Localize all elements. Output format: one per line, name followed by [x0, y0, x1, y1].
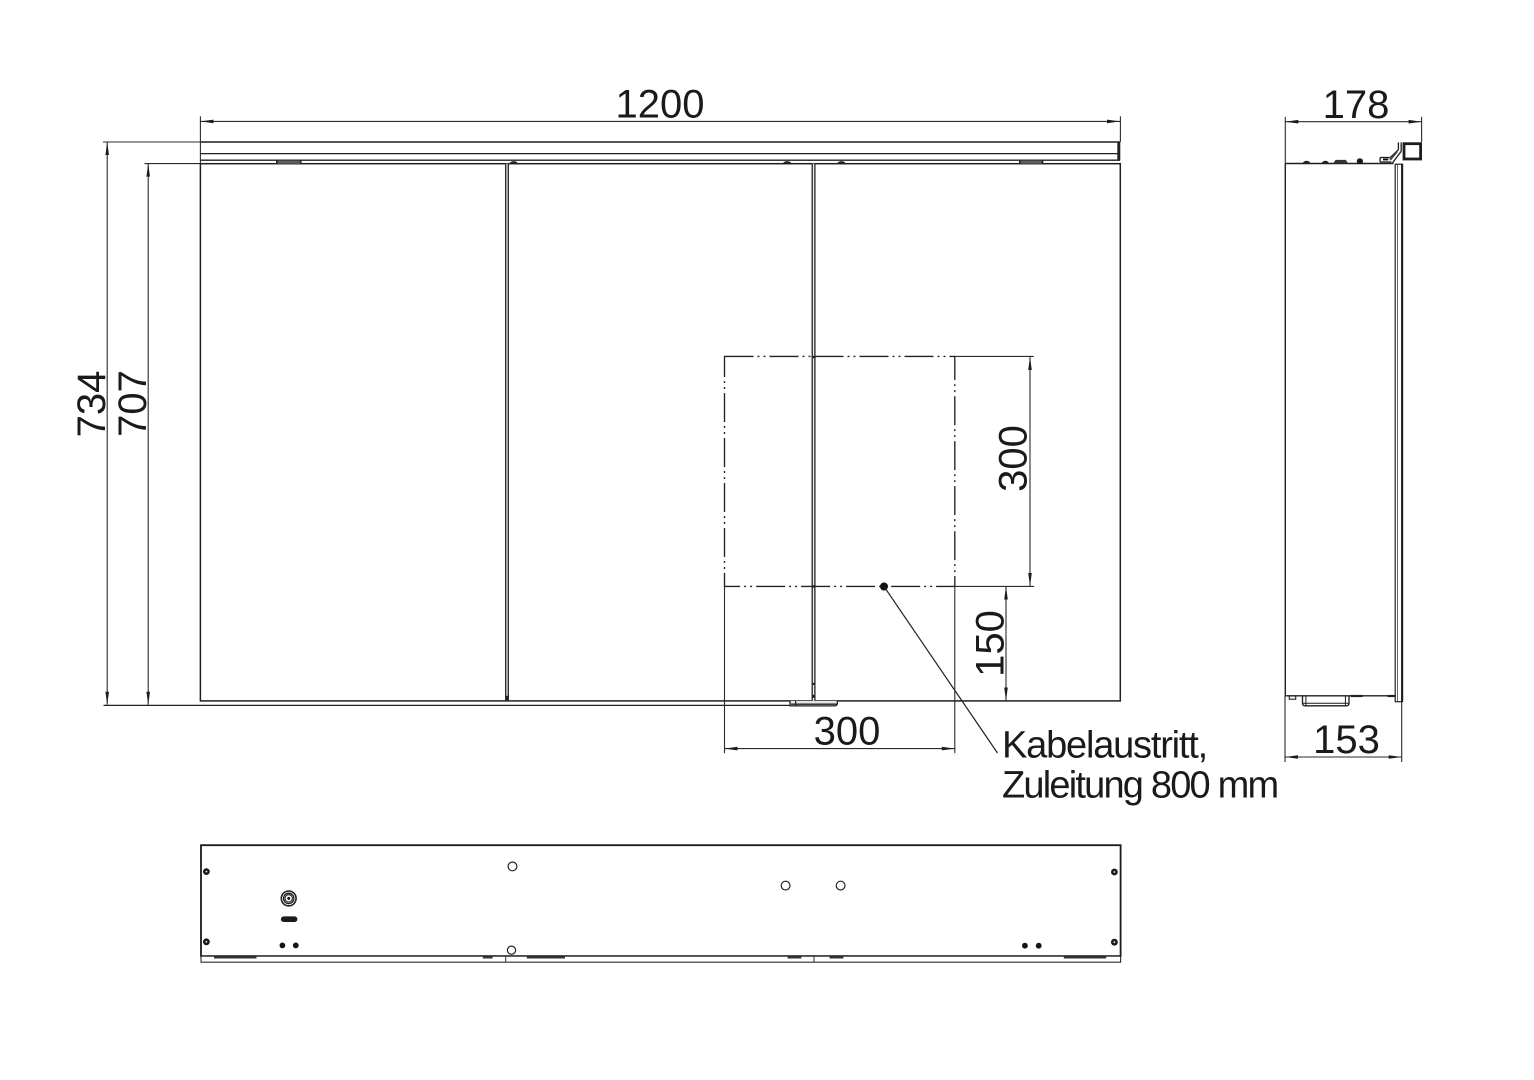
svg-text:150: 150: [968, 610, 1012, 677]
svg-text:734: 734: [70, 371, 114, 438]
svg-text:178: 178: [1323, 83, 1390, 127]
svg-text:1200: 1200: [616, 83, 705, 127]
svg-text:Kabelaustritt,: Kabelaustritt,: [1002, 725, 1207, 767]
svg-text:Zuleitung 800 mm: Zuleitung 800 mm: [1002, 765, 1277, 807]
svg-text:707: 707: [111, 370, 155, 437]
svg-text:153: 153: [1313, 718, 1380, 762]
svg-text:300: 300: [992, 425, 1036, 492]
svg-text:300: 300: [814, 710, 881, 754]
